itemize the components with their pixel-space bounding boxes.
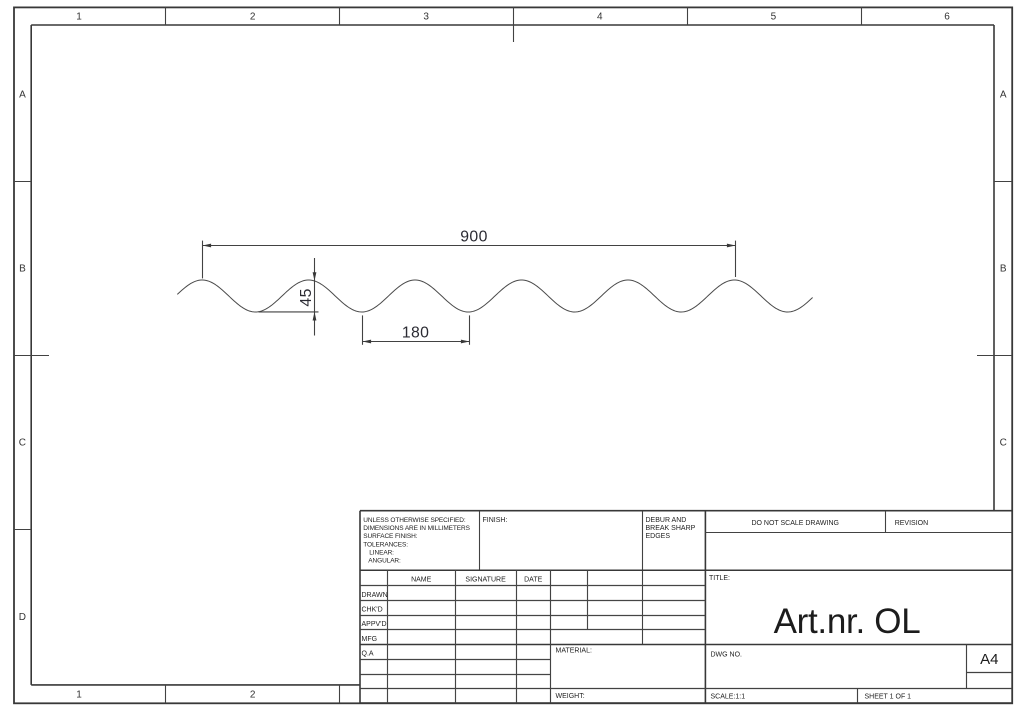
- svg-text:Art.nr. OL: Art.nr. OL: [774, 602, 921, 641]
- svg-text:C: C: [19, 438, 26, 449]
- svg-text:DIMENSIONS ARE IN MILLIMETERS: DIMENSIONS ARE IN MILLIMETERS: [363, 525, 470, 532]
- svg-text:REVISION: REVISION: [895, 520, 928, 527]
- svg-text:LINEAR:: LINEAR:: [369, 549, 394, 556]
- svg-text:TOLERANCES:: TOLERANCES:: [363, 541, 408, 548]
- svg-text:C: C: [1000, 438, 1007, 449]
- svg-text:B: B: [1000, 264, 1007, 275]
- svg-text:A4: A4: [980, 651, 998, 668]
- svg-text:MATERIAL:: MATERIAL:: [556, 648, 592, 655]
- svg-text:B: B: [19, 264, 26, 275]
- svg-text:NAME: NAME: [411, 576, 432, 583]
- svg-text:TITLE:: TITLE:: [709, 575, 730, 582]
- svg-text:EDGES: EDGES: [646, 533, 671, 540]
- svg-text:ANGULAR:: ANGULAR:: [368, 558, 401, 565]
- svg-text:5: 5: [771, 11, 777, 22]
- svg-text:FINISH:: FINISH:: [483, 517, 508, 524]
- svg-text:A: A: [1000, 90, 1007, 101]
- svg-text:3: 3: [423, 11, 429, 22]
- svg-text:D: D: [19, 612, 26, 623]
- svg-text:A: A: [19, 90, 26, 101]
- svg-text:2: 2: [250, 689, 256, 700]
- svg-text:180: 180: [402, 325, 430, 342]
- svg-text:2: 2: [250, 11, 256, 22]
- svg-text:BREAK SHARP: BREAK SHARP: [646, 525, 696, 532]
- svg-text:4: 4: [597, 11, 603, 22]
- svg-text:DWG NO.: DWG NO.: [711, 652, 743, 659]
- svg-text:1: 1: [76, 689, 82, 700]
- svg-text:SURFACE FINISH:: SURFACE FINISH:: [363, 533, 417, 540]
- svg-text:SHEET 1 OF 1: SHEET 1 OF 1: [865, 694, 912, 701]
- svg-text:6: 6: [944, 11, 950, 22]
- svg-text:WEIGHT:: WEIGHT:: [556, 693, 585, 700]
- svg-text:DEBUR AND: DEBUR AND: [646, 517, 687, 524]
- svg-text:900: 900: [460, 229, 488, 246]
- svg-text:SCALE:1:1: SCALE:1:1: [711, 694, 746, 701]
- svg-text:DO NOT SCALE DRAWING: DO NOT SCALE DRAWING: [751, 520, 839, 527]
- svg-text:MFG: MFG: [362, 636, 378, 643]
- svg-text:DRAWN: DRAWN: [362, 592, 388, 599]
- svg-text:UNLESS OTHERWISE SPECIFIED:: UNLESS OTHERWISE SPECIFIED:: [363, 517, 466, 524]
- svg-text:DATE: DATE: [524, 576, 542, 583]
- svg-text:45: 45: [298, 288, 315, 306]
- svg-text:1: 1: [76, 11, 82, 22]
- svg-text:Q.A: Q.A: [362, 651, 374, 658]
- svg-text:APPV'D: APPV'D: [362, 621, 387, 628]
- svg-text:SIGNATURE: SIGNATURE: [465, 576, 506, 583]
- svg-text:CHK'D: CHK'D: [362, 607, 383, 614]
